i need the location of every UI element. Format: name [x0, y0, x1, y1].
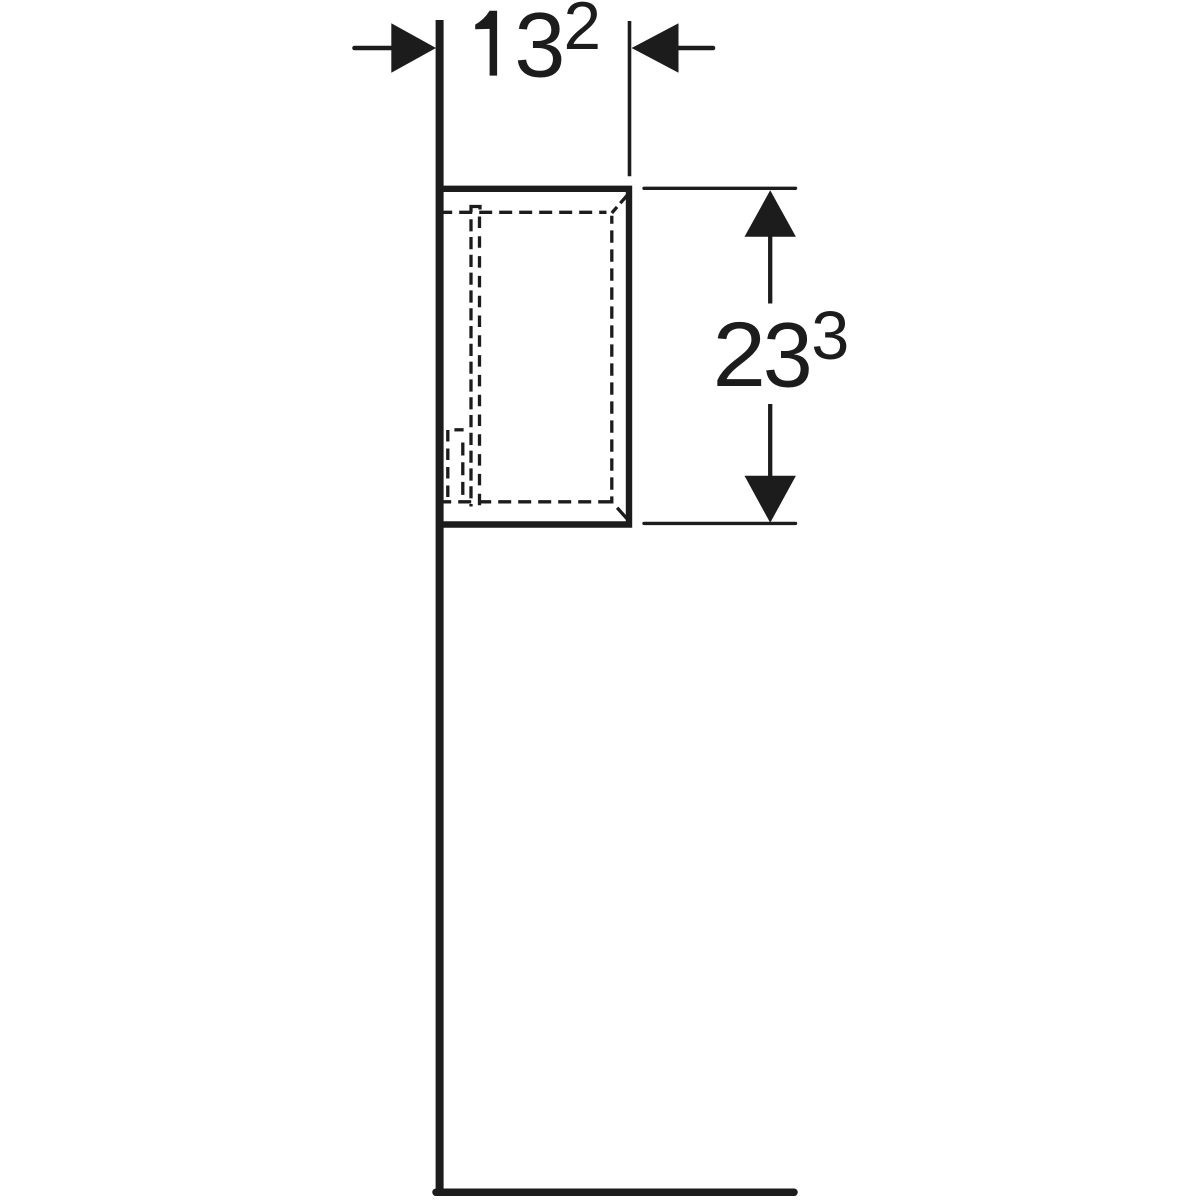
svg-text:3: 3 [811, 297, 849, 374]
svg-text:3: 3 [763, 305, 813, 407]
svg-text:3: 3 [514, 0, 565, 96]
svg-text:2: 2 [564, 0, 602, 64]
svg-text:2: 2 [713, 304, 767, 406]
